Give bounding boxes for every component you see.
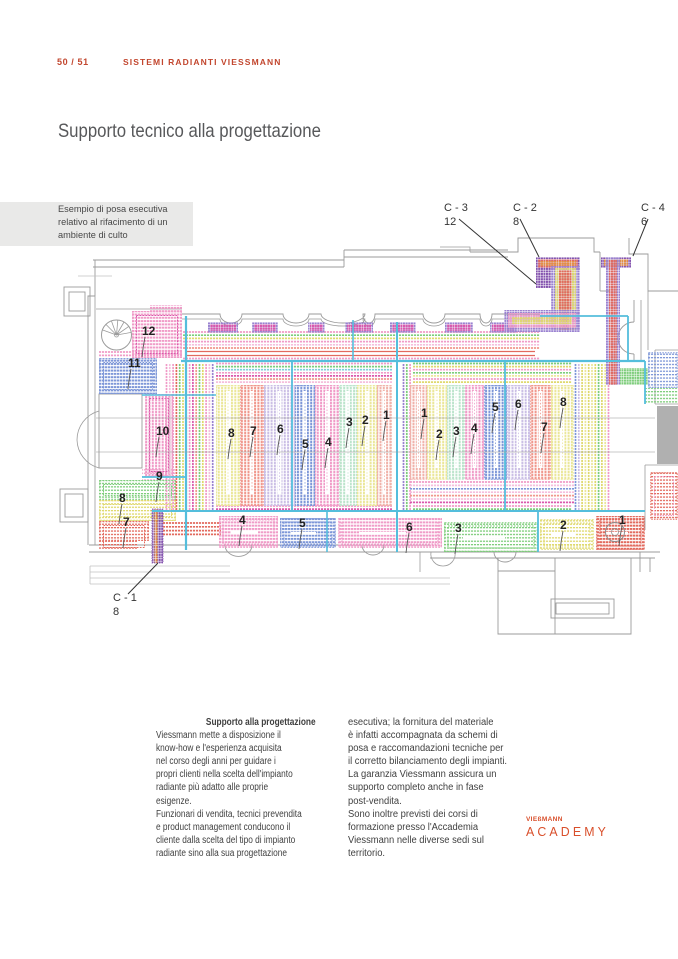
svg-text:C - 1: C - 1 [113,592,137,604]
svg-text:C - 4: C - 4 [641,202,665,214]
svg-text:5: 5 [302,437,309,451]
svg-text:C - 3: C - 3 [444,202,468,214]
svg-text:8: 8 [228,426,235,440]
svg-text:4: 4 [239,513,246,527]
svg-text:7: 7 [123,515,130,529]
svg-text:6: 6 [277,422,284,436]
svg-text:11: 11 [128,356,141,370]
svg-text:2: 2 [436,427,443,441]
svg-text:8: 8 [113,606,119,618]
svg-text:10: 10 [156,424,170,438]
svg-text:12: 12 [444,216,456,228]
svg-text:1: 1 [421,406,428,420]
svg-text:2: 2 [560,518,567,532]
svg-text:5: 5 [299,516,306,530]
svg-text:6: 6 [515,397,522,411]
svg-text:8: 8 [513,216,519,228]
svg-text:9: 9 [156,469,163,483]
svg-text:3: 3 [453,424,460,438]
svg-text:3: 3 [346,415,353,429]
svg-text:1: 1 [383,408,390,422]
svg-text:8: 8 [119,491,126,505]
svg-text:3: 3 [455,521,462,535]
svg-text:C - 2: C - 2 [513,202,537,214]
svg-text:6: 6 [406,520,413,534]
svg-text:7: 7 [541,420,548,434]
svg-text:2: 2 [362,413,369,427]
svg-text:6: 6 [641,216,647,228]
svg-text:8: 8 [560,395,567,409]
svg-text:12: 12 [142,324,156,338]
svg-text:4: 4 [471,421,478,435]
svg-text:1: 1 [619,513,626,527]
svg-text:5: 5 [492,400,499,414]
svg-text:4: 4 [325,435,332,449]
svg-text:7: 7 [250,424,257,438]
